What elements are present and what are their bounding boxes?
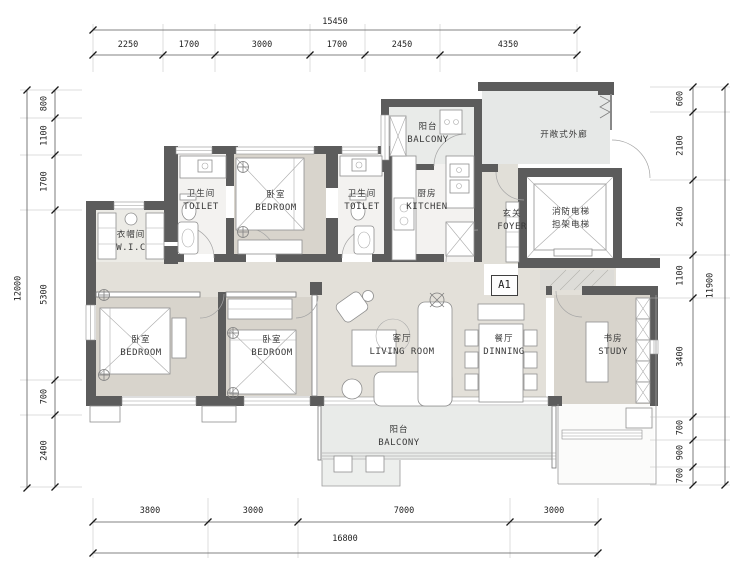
dim-right-seg: 3400 bbox=[676, 335, 687, 379]
dim-top-seg: 3000 bbox=[227, 40, 297, 51]
room-label-bedroom-mid: 卧室 BEDROOM bbox=[227, 334, 317, 360]
floor-plan-drawing bbox=[0, 0, 740, 571]
room-label-dining: 餐厅 DINNING bbox=[459, 333, 549, 359]
unit-type-badge: A1 bbox=[491, 275, 518, 296]
dim-top-seg: 4350 bbox=[473, 40, 543, 51]
room-label-balcony-bottom: 阳台 BALCONY bbox=[354, 424, 444, 450]
dim-bottom-seg: 3000 bbox=[519, 506, 589, 517]
dim-left-seg: 5300 bbox=[40, 273, 51, 317]
dim-right-total: 11900 bbox=[706, 264, 717, 308]
dim-bottom-seg: 7000 bbox=[369, 506, 439, 517]
dim-top-seg: 1700 bbox=[154, 40, 224, 51]
room-label-study: 书房 STUDY bbox=[568, 333, 658, 359]
dim-left-total: 12000 bbox=[14, 267, 25, 311]
dim-right-seg: 2100 bbox=[676, 124, 687, 168]
dim-right-seg: 1100 bbox=[676, 254, 687, 298]
room-label-corridor: 开敞式外廊 bbox=[519, 129, 609, 142]
dim-top-total: 15450 bbox=[300, 17, 370, 28]
floor-plan-page: 15450 2250 1700 3000 1700 2450 4350 3800… bbox=[0, 0, 740, 571]
dim-left-seg: 2400 bbox=[40, 429, 51, 473]
dim-top-seg: 2250 bbox=[93, 40, 163, 51]
dim-bottom-seg: 3000 bbox=[218, 506, 288, 517]
room-label-kitchen: 厨房 KITCHEN bbox=[382, 188, 472, 214]
room-label-bedroom-left: 卧室 BEDROOM bbox=[96, 334, 186, 360]
dim-bottom-seg: 3800 bbox=[115, 506, 185, 517]
room-label-living: 客厅 LIVING ROOM bbox=[357, 333, 447, 359]
dim-right-seg: 700 bbox=[676, 454, 687, 498]
dim-left-seg: 1100 bbox=[40, 114, 51, 158]
dim-right-seg: 600 bbox=[676, 77, 687, 121]
room-label-elevator: 消防电梯 担架电梯 bbox=[526, 206, 616, 232]
dim-top-seg: 2450 bbox=[367, 40, 437, 51]
dim-left-seg: 1700 bbox=[40, 160, 51, 204]
dim-left-seg: 700 bbox=[40, 375, 51, 419]
dim-top-seg: 1700 bbox=[302, 40, 372, 51]
room-label-wic: 衣帽间 W.I.C bbox=[86, 229, 176, 255]
room-label-bedroom-top: 卧室 BEDROOM bbox=[231, 189, 321, 215]
dim-right-seg: 2400 bbox=[676, 195, 687, 239]
dim-bottom-total: 16800 bbox=[310, 534, 380, 545]
room-label-balcony-top: 阳台 BALCONY bbox=[383, 121, 473, 147]
